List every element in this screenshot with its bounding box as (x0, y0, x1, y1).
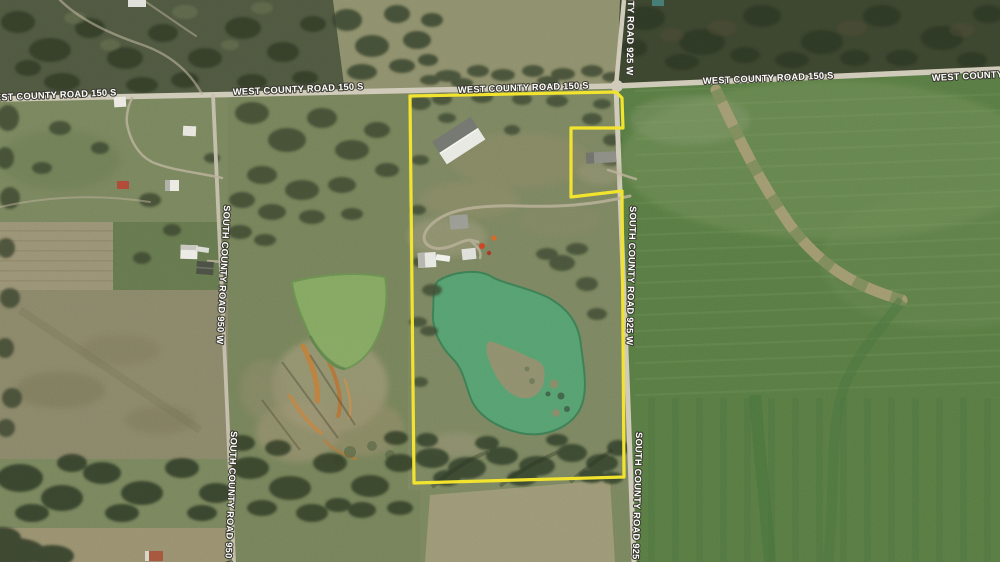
satellite-map[interactable]: WEST COUNTY ROAD 150 S WEST COUNTY ROAD … (0, 0, 1000, 562)
road-label-south-925w: SOUTH COUNTY ROAD 925 W (625, 0, 637, 75)
map-viewport[interactable]: WEST COUNTY ROAD 150 S WEST COUNTY ROAD … (0, 0, 1000, 562)
